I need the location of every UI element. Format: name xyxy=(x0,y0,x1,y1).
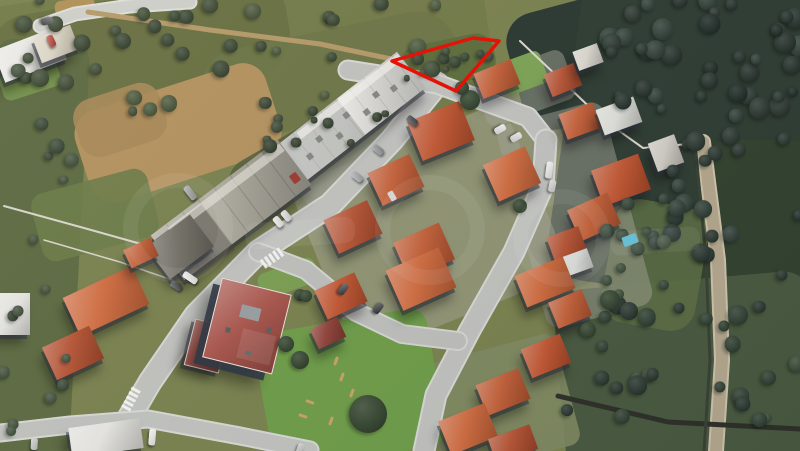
aerial-photo xyxy=(0,0,800,451)
plot-outline-overlay xyxy=(0,0,800,451)
plot-outline xyxy=(392,38,499,91)
